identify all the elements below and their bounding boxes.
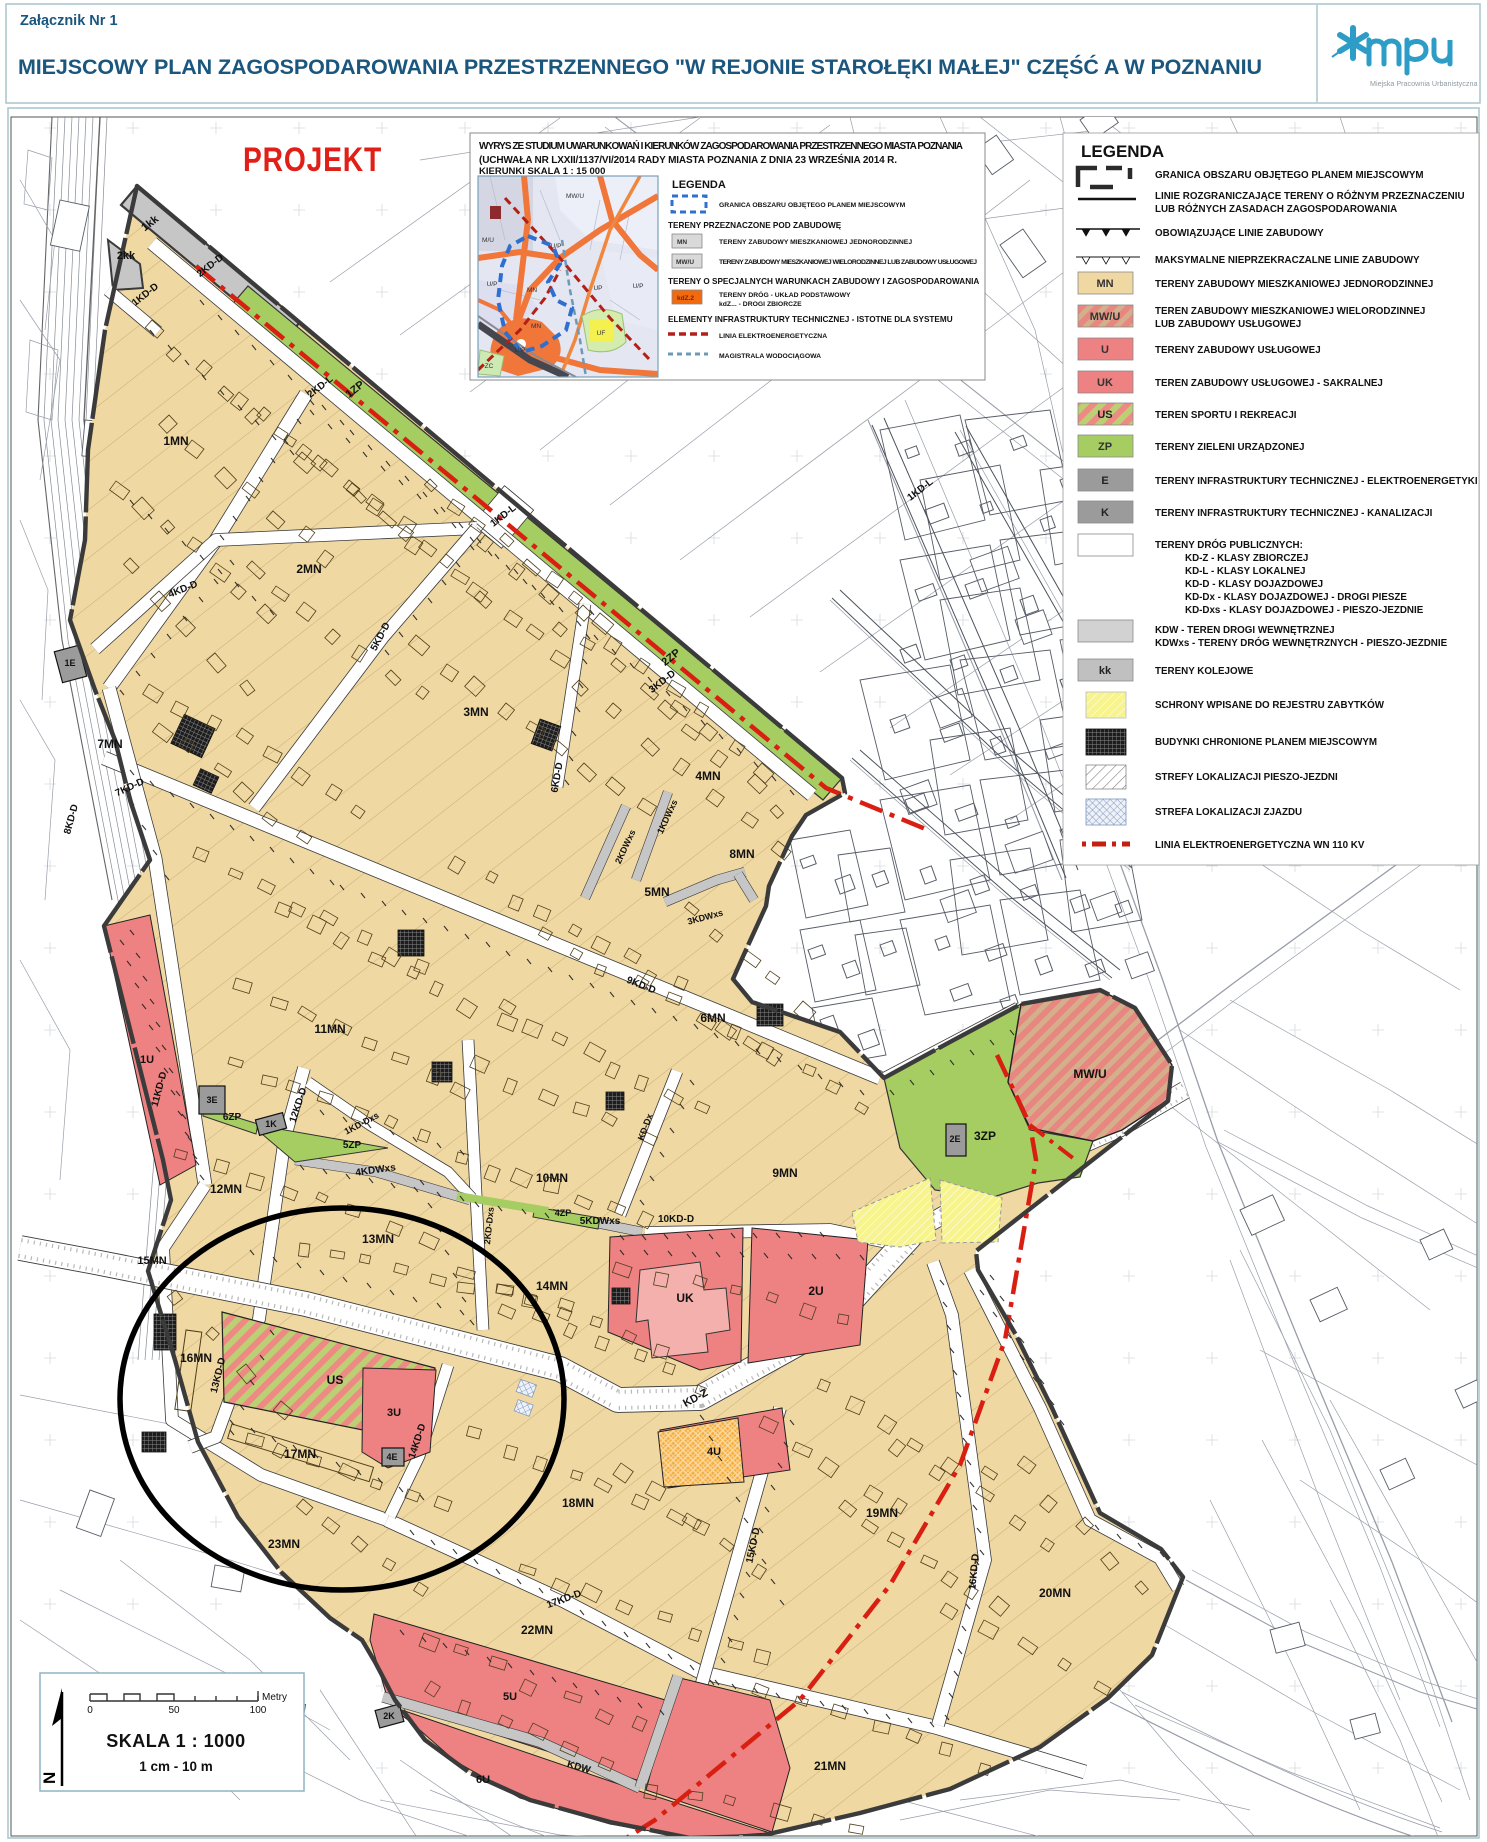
svg-text:US: US	[327, 1373, 344, 1387]
svg-text:TERENY KOLEJOWE: TERENY KOLEJOWE	[1155, 666, 1254, 677]
svg-text:MW/U: MW/U	[1073, 1067, 1106, 1081]
svg-text:MW/U: MW/U	[1090, 311, 1121, 323]
svg-text:SCHRONY WPISANE DO REJESTRU ZA: SCHRONY WPISANE DO REJESTRU ZABYTKÓW	[1155, 699, 1385, 711]
svg-text:MN: MN	[531, 323, 541, 330]
svg-text:LUB ZABUDOWY USŁUGOWEJ: LUB ZABUDOWY USŁUGOWEJ	[1155, 319, 1301, 330]
svg-text:U/P: U/P	[515, 347, 526, 354]
svg-text:TERENY DRÓG PUBLICZNYCH:: TERENY DRÓG PUBLICZNYCH:	[1155, 539, 1303, 551]
svg-text:1U: 1U	[140, 1054, 154, 1066]
svg-text:KD-Z - KLASY ZBIORCZEJ: KD-Z - KLASY ZBIORCZEJ	[1185, 553, 1308, 564]
svg-text:(UCHWAŁA NR LXXII/1137/VI/2014: (UCHWAŁA NR LXXII/1137/VI/2014 RADY MIAS…	[479, 153, 897, 166]
svg-text:14MN: 14MN	[536, 1279, 568, 1293]
svg-text:UP: UP	[593, 285, 602, 292]
svg-text:MN: MN	[1096, 278, 1113, 290]
svg-text:BUDYNKI CHRONIONE PLANEM MIEJS: BUDYNKI CHRONIONE PLANEM MIEJSCOWYM	[1155, 737, 1377, 748]
svg-text:Miejska Pracownia Urbanistyczn: Miejska Pracownia Urbanistyczna	[1370, 79, 1477, 88]
svg-text:1K: 1K	[265, 1119, 277, 1129]
svg-text:OBOWIĄZUJĄCE LINIE ZABUDOWY: OBOWIĄZUJĄCE LINIE ZABUDOWY	[1155, 228, 1324, 239]
svg-text:KD-L - KLASY LOKALNEJ: KD-L - KLASY LOKALNEJ	[1185, 566, 1305, 577]
svg-text:MAGISTRALA WODOCIĄGOWA: MAGISTRALA WODOCIĄGOWA	[719, 353, 821, 360]
svg-text:4MN: 4MN	[695, 769, 720, 783]
svg-text:GRANICA OBSZARU OBJĘTEGO PLANE: GRANICA OBSZARU OBJĘTEGO PLANEM MIEJSCOW…	[719, 202, 906, 209]
svg-text:MW/U: MW/U	[566, 193, 584, 200]
svg-text:TERENY ZABUDOWY MIESZKANIOWEJ: TERENY ZABUDOWY MIESZKANIOWEJ WIELORODZI…	[719, 259, 977, 266]
svg-text:KDWxs - TERENY DRÓG WEWNĘTRZNY: KDWxs - TERENY DRÓG WEWNĘTRZNYCH - PIESZ…	[1155, 637, 1448, 649]
svg-text:5KDWxs: 5KDWxs	[580, 1216, 621, 1227]
svg-text:KD-Dx - KLASY DOJAZDOWEJ - DR: KD-Dx - KLASY DOJAZDOWEJ - DROGI PIESZE	[1185, 592, 1407, 603]
svg-text:6ZP: 6ZP	[223, 1112, 242, 1123]
svg-text:kk: kk	[1099, 665, 1112, 677]
svg-text:STREFA LOKALIZACJI ZJAZDU: STREFA LOKALIZACJI ZJAZDU	[1155, 807, 1302, 818]
svg-text:MW/U: MW/U	[676, 259, 694, 266]
svg-text:kdZ.2: kdZ.2	[677, 295, 694, 302]
svg-text:4E: 4E	[386, 1452, 397, 1462]
svg-text:22MN: 22MN	[521, 1623, 553, 1637]
svg-text:21MN: 21MN	[814, 1759, 846, 1773]
svg-text:K: K	[1101, 507, 1109, 519]
svg-text:STREFY LOKALIZACJI PIESZO-JEZD: STREFY LOKALIZACJI PIESZO-JEZDNI	[1155, 772, 1338, 783]
svg-text:ZC: ZC	[485, 363, 494, 370]
svg-text:3U: 3U	[387, 1407, 401, 1419]
svg-text:TERENY ZABUDOWY USŁUGOWEJ: TERENY ZABUDOWY USŁUGOWEJ	[1155, 345, 1321, 356]
svg-text:50: 50	[168, 1705, 180, 1716]
svg-text:WYRYS ZE STUDIUM UWARUNKOWAŃ I: WYRYS ZE STUDIUM UWARUNKOWAŃ I KIERUNKÓW…	[479, 139, 963, 152]
svg-text:8MN: 8MN	[729, 847, 754, 861]
svg-text:U/P: U/P	[633, 283, 644, 290]
svg-text:3E: 3E	[206, 1095, 217, 1105]
svg-text:7MN: 7MN	[97, 737, 122, 751]
svg-text:MN: MN	[527, 287, 537, 294]
svg-text:100: 100	[250, 1705, 267, 1716]
svg-text:U/P: U/P	[487, 281, 498, 288]
svg-text:TERENY INFRASTRUKTURY TECHNICZ: TERENY INFRASTRUKTURY TECHNICZNEJ - ELEK…	[1155, 476, 1478, 487]
svg-text:GRANICA OBSZARU OBJĘTEGO PLANE: GRANICA OBSZARU OBJĘTEGO PLANEM MIEJSCOW…	[1155, 170, 1424, 181]
svg-text:23MN: 23MN	[268, 1537, 300, 1551]
svg-text:17MN: 17MN	[284, 1447, 316, 1461]
svg-text:18MN: 18MN	[562, 1496, 594, 1510]
svg-text:MIEJSCOWY PLAN ZAGOSPODAROWANI: MIEJSCOWY PLAN ZAGOSPODAROWANIA PRZESTRZ…	[18, 54, 1262, 79]
svg-text:10KD-D: 10KD-D	[658, 1214, 694, 1225]
svg-text:LEGENDA: LEGENDA	[672, 179, 726, 191]
svg-text:20MN: 20MN	[1039, 1586, 1071, 1600]
svg-text:2kk: 2kk	[117, 250, 136, 262]
svg-text:TEREN ZABUDOWY MIESZKANIOWEJ W: TEREN ZABUDOWY MIESZKANIOWEJ WIELORODZIN…	[1155, 306, 1425, 317]
svg-text:4ZP: 4ZP	[555, 1208, 572, 1218]
svg-text:U/P: U/P	[551, 243, 562, 250]
svg-text:1MN: 1MN	[163, 434, 188, 448]
svg-text:5U: 5U	[503, 1691, 517, 1703]
svg-text:TEREN SPORTU I REKREACJI: TEREN SPORTU I REKREACJI	[1155, 410, 1297, 421]
svg-text:KD-D - KLASY DOJAZDOWEJ: KD-D - KLASY DOJAZDOWEJ	[1185, 579, 1323, 590]
svg-text:1 cm - 10 m: 1 cm - 10 m	[139, 1759, 213, 1774]
svg-text:10MN: 10MN	[536, 1171, 568, 1185]
svg-text:3ZP: 3ZP	[974, 1129, 996, 1143]
svg-text:16MN: 16MN	[180, 1351, 212, 1365]
svg-text:TERENY DRÓG - UKŁAD PODSTAWOWY: TERENY DRÓG - UKŁAD PODSTAWOWY	[719, 290, 851, 299]
svg-text:U: U	[1101, 344, 1109, 356]
svg-text:Metry: Metry	[262, 1692, 287, 1703]
svg-text:UK: UK	[1097, 377, 1113, 389]
svg-text:1E: 1E	[64, 658, 75, 668]
svg-text:5MN: 5MN	[644, 885, 669, 899]
svg-text:4U: 4U	[707, 1446, 721, 1458]
svg-text:KD-Dxs - KLASY DOJAZDOWEJ - PI: KD-Dxs - KLASY DOJAZDOWEJ - PIESZO-JEZDN…	[1185, 605, 1424, 616]
svg-text:TEREN ZABUDOWY USŁUGOWEJ - SAK: TEREN ZABUDOWY USŁUGOWEJ - SAKRALNEJ	[1155, 378, 1383, 389]
svg-text:US: US	[1097, 409, 1112, 421]
svg-text:12MN: 12MN	[210, 1182, 242, 1196]
svg-text:9MN: 9MN	[772, 1166, 797, 1180]
svg-text:TERENY ZABUDOWY MIESZKANIOWEJ: TERENY ZABUDOWY MIESZKANIOWEJ JEDNORODZI…	[719, 239, 912, 246]
svg-text:Załącznik Nr 1: Załącznik Nr 1	[20, 13, 118, 29]
svg-text:TERENY INFRASTRUKTURY TECHNICZ: TERENY INFRASTRUKTURY TECHNICZNEJ - KANA…	[1155, 508, 1433, 519]
svg-text:2E: 2E	[949, 1134, 960, 1144]
svg-text:E: E	[1101, 475, 1108, 487]
svg-text:13MN: 13MN	[362, 1232, 394, 1246]
svg-text:UK: UK	[676, 1291, 694, 1305]
svg-text:TERENY PRZEZNACZONE POD ZABUDO: TERENY PRZEZNACZONE POD ZABUDOWĘ	[668, 221, 842, 230]
svg-text:2U: 2U	[808, 1284, 823, 1298]
svg-text:15MN: 15MN	[137, 1255, 166, 1267]
svg-text:11MN: 11MN	[314, 1022, 345, 1036]
svg-text:0: 0	[87, 1705, 93, 1716]
svg-text:LINIA ELEKTROENERGETYCZNA: LINIA ELEKTROENERGETYCZNA	[719, 333, 827, 340]
svg-text:2K: 2K	[383, 1711, 395, 1721]
svg-text:PROJEKT: PROJEKT	[243, 141, 382, 179]
svg-text:kdZ... - DROGI ZBIORCZE: kdZ... - DROGI ZBIORCZE	[719, 301, 802, 308]
svg-text:M/U: M/U	[482, 237, 494, 244]
svg-text:6MN: 6MN	[700, 1011, 725, 1025]
svg-text:6U: 6U	[476, 1774, 490, 1786]
svg-text:LINIA ELEKTROENERGETYCZNA WN 1: LINIA ELEKTROENERGETYCZNA WN 110 KV	[1155, 840, 1365, 851]
svg-text:SKALA 1 : 1000: SKALA 1 : 1000	[106, 1731, 245, 1751]
svg-text:ZP: ZP	[1098, 441, 1112, 453]
svg-text:MN: MN	[677, 239, 687, 246]
svg-text:UF: UF	[597, 330, 606, 337]
svg-text:3MN: 3MN	[463, 705, 488, 719]
svg-text:TERENY ZABUDOWY MIESZKANIOWEJ: TERENY ZABUDOWY MIESZKANIOWEJ JEDNORODZI…	[1155, 279, 1433, 290]
svg-text:MAKSYMALNE NIEPRZEKRACZALNE LI: MAKSYMALNE NIEPRZEKRACZALNE LINIE ZABUDO…	[1155, 255, 1420, 266]
svg-text:LINIE ROZGRANICZAJĄCE TERENY O: LINIE ROZGRANICZAJĄCE TERENY O RÓŻNYM PR…	[1155, 190, 1465, 202]
svg-text:2MN: 2MN	[296, 562, 321, 576]
svg-text:ELEMENTY INFRASTRUKTURY TECHNI: ELEMENTY INFRASTRUKTURY TECHNICZNEJ - IS…	[668, 315, 953, 324]
svg-text:KIERUNKI SKALA 1 : 15 000: KIERUNKI SKALA 1 : 15 000	[479, 166, 605, 177]
svg-text:5ZP: 5ZP	[343, 1140, 362, 1151]
svg-text:TERENY ZIELENI URZĄDZONEJ: TERENY ZIELENI URZĄDZONEJ	[1155, 442, 1305, 453]
svg-text:19MN: 19MN	[866, 1506, 898, 1520]
svg-text:KDW - TEREN DROGI WEWNĘTRZNEJ: KDW - TEREN DROGI WEWNĘTRZNEJ	[1155, 625, 1335, 636]
svg-text:TERENY O SPECJALNYCH WARUNKACH: TERENY O SPECJALNYCH WARUNKACH ZABUDOWY …	[668, 277, 979, 286]
svg-text:N: N	[40, 1772, 59, 1784]
svg-text:LUB RÓŻNYCH ZASADACH ZAGOSPODA: LUB RÓŻNYCH ZASADACH ZAGOSPODAROWANIA	[1155, 203, 1397, 215]
svg-text:LEGENDA: LEGENDA	[1081, 142, 1164, 161]
